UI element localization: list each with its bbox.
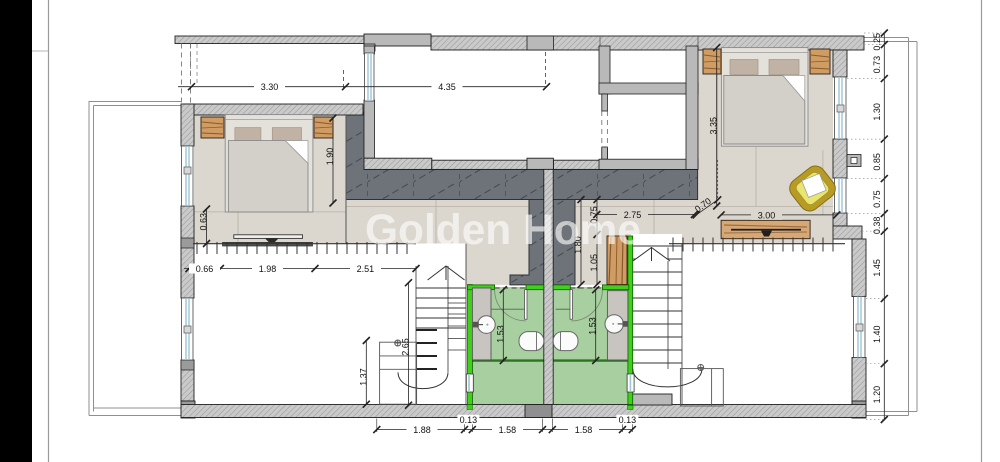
svg-text:3.00: 3.00 bbox=[758, 210, 776, 220]
svg-text:0.25: 0.25 bbox=[872, 33, 882, 51]
svg-text:0.66: 0.66 bbox=[196, 264, 214, 274]
svg-text:1.88: 1.88 bbox=[413, 425, 431, 435]
svg-text:0.38: 0.38 bbox=[872, 217, 882, 235]
svg-text:3.35: 3.35 bbox=[709, 117, 719, 135]
svg-text:0.63: 0.63 bbox=[199, 213, 209, 231]
svg-text:2.65: 2.65 bbox=[401, 338, 411, 356]
svg-text:1.98: 1.98 bbox=[259, 264, 277, 274]
svg-text:1.20: 1.20 bbox=[872, 386, 882, 404]
svg-text:1.37: 1.37 bbox=[358, 368, 368, 386]
svg-text:0.13: 0.13 bbox=[619, 415, 637, 425]
svg-text:0.73: 0.73 bbox=[872, 56, 882, 74]
svg-text:0.85: 0.85 bbox=[872, 153, 882, 171]
svg-text:4.35: 4.35 bbox=[438, 82, 456, 92]
svg-text:1.90: 1.90 bbox=[325, 148, 335, 166]
svg-text:1.45: 1.45 bbox=[872, 259, 882, 277]
svg-text:1.58: 1.58 bbox=[499, 425, 517, 435]
svg-text:1.53: 1.53 bbox=[588, 317, 598, 335]
svg-text:3.30: 3.30 bbox=[261, 82, 279, 92]
svg-text:1.40: 1.40 bbox=[872, 325, 882, 343]
svg-text:1.30: 1.30 bbox=[872, 103, 882, 121]
svg-text:0.75: 0.75 bbox=[872, 190, 882, 208]
svg-text:0.13: 0.13 bbox=[460, 415, 478, 425]
svg-text:1.58: 1.58 bbox=[575, 425, 593, 435]
svg-text:1.05: 1.05 bbox=[589, 254, 599, 272]
svg-text:1.53: 1.53 bbox=[495, 325, 505, 343]
svg-text:2.51: 2.51 bbox=[357, 264, 375, 274]
svg-text:Golden Home: Golden Home bbox=[365, 206, 641, 254]
